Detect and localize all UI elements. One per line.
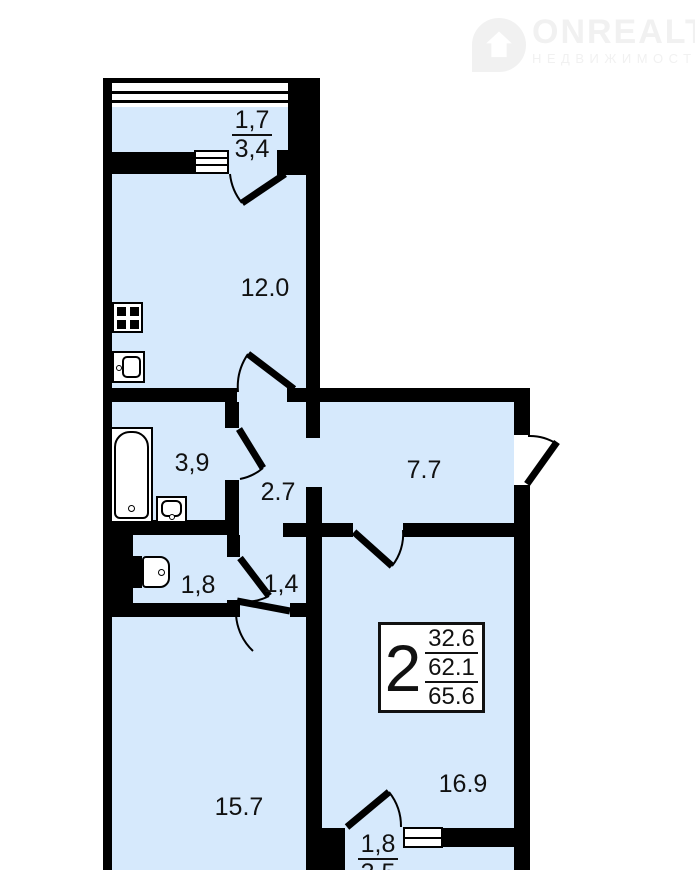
balcony-bottom-area-total: 3,5 [349, 861, 407, 870]
room-label-balcony-bottom: 1,8 3,5 [349, 832, 407, 870]
door-bathroom [239, 429, 263, 479]
balcony-top-area: 1,7 [232, 108, 273, 136]
room-label-hall-small: 1,4 [251, 572, 311, 597]
living-area-value: 32.6 [425, 625, 478, 654]
onrealt-logo: ONREALT НЕДВИЖИМОСТЬ [472, 12, 695, 72]
middle-area-value: 62.1 [425, 654, 478, 683]
apartment-summary-box: 2 32.6 62.1 65.6 [378, 622, 485, 713]
rooms-count: 2 [381, 638, 425, 698]
room-label-bedroom: 16.9 [433, 772, 493, 797]
logo-text: ONREALT НЕДВИЖИМОСТЬ [532, 12, 695, 66]
door-bedroom-balcony [347, 792, 401, 827]
balcony-bottom-area: 1,8 [358, 832, 399, 860]
floorplan-canvas: 1,7 3,4 12.0 3,9 2.7 7.7 1,8 1,4 15.7 16… [0, 0, 695, 870]
door-corridor-bedroom [354, 530, 403, 566]
room-label-balcony-top: 1,7 3,4 [220, 108, 284, 162]
door-entrance [527, 436, 557, 484]
room-label-bathroom: 3,9 [162, 451, 222, 476]
door-kitchen-hallway [238, 354, 294, 392]
house-icon [483, 29, 515, 61]
room-label-hallway: 2.7 [248, 480, 308, 505]
room-label-living: 15.7 [209, 795, 269, 820]
room-label-kitchen: 12.0 [235, 276, 295, 301]
pin-house-icon [472, 18, 526, 72]
room-label-corridor: 7.7 [394, 458, 454, 483]
door-swings-layer [0, 0, 695, 870]
logo-brand-name: ONREALT [532, 12, 695, 52]
door-balcony-kitchen [230, 174, 285, 203]
logo-tagline: НЕДВИЖИМОСТЬ [532, 52, 695, 66]
door-hall-living [236, 601, 290, 651]
areas-column: 32.6 62.1 65.6 [425, 625, 478, 710]
total-area-value: 65.6 [425, 683, 478, 710]
room-label-wc: 1,8 [168, 573, 228, 598]
balcony-top-area-total: 3,4 [220, 137, 284, 162]
